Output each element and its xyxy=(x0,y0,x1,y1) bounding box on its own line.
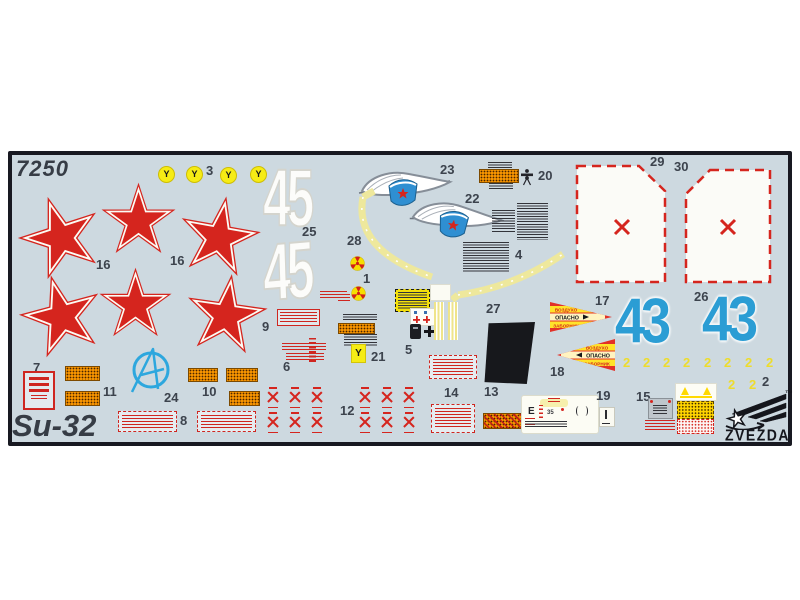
red-stencil-text xyxy=(286,353,324,362)
red-micro-text xyxy=(548,398,560,404)
red-outline-plate xyxy=(277,309,320,326)
part-label-3: 3 xyxy=(206,164,213,177)
red-star xyxy=(96,266,175,345)
red-dot xyxy=(650,400,653,403)
placard-bar xyxy=(29,389,49,392)
orange-striped-decal xyxy=(479,169,519,183)
danger-main-text: ОПАСНО xyxy=(555,316,579,322)
red-dot xyxy=(668,400,671,403)
part-label-6: 6 xyxy=(283,360,290,373)
panel-letter: E xyxy=(528,407,535,417)
small-bort-number: 2 xyxy=(724,356,731,369)
part-label-13: 13 xyxy=(484,385,498,398)
red-dashed-plate xyxy=(431,404,475,433)
small-bort-number: 2 xyxy=(643,356,650,369)
no-step-cross-decal xyxy=(356,387,374,408)
small-bort-number: 2 xyxy=(683,356,690,369)
small-bort-number: 2 xyxy=(663,356,670,369)
yellow-ladder-bars xyxy=(434,302,459,340)
marker-base xyxy=(602,423,610,425)
yellow-arrow-icon xyxy=(681,387,689,395)
no-step-cross-decal xyxy=(286,387,304,408)
block-marks xyxy=(653,405,667,415)
arrow-strip-decal xyxy=(675,383,717,401)
yellow-arrow-icon xyxy=(703,387,711,395)
panel-code: 35 xyxy=(547,410,554,416)
red-cross-mark xyxy=(413,316,420,323)
part-label-12: 12 xyxy=(340,404,354,417)
small-white-decal xyxy=(430,284,451,301)
trademark-symbol: ™ xyxy=(785,389,793,398)
bracket-mark xyxy=(576,406,581,416)
bort-number-blue: 43 xyxy=(615,294,667,347)
orange-striped-decal xyxy=(338,323,375,334)
red-text-lines xyxy=(201,415,252,428)
red-dotted-decal xyxy=(677,419,714,434)
part-label-10: 10 xyxy=(202,385,216,398)
part-label-4: 4 xyxy=(515,248,522,261)
gray-block-decal xyxy=(648,398,673,419)
red-text-lines xyxy=(435,408,471,429)
orange-cross-decal xyxy=(483,413,526,429)
bracket-mark xyxy=(583,406,588,416)
danger-bottom-text: ЗАБОРНИК xyxy=(584,361,610,366)
danger-bottom-text: ЗАБОРНИК xyxy=(553,323,579,328)
red-stencil-text xyxy=(338,294,350,301)
small-bort-number: 2 xyxy=(704,356,711,369)
ejection-square-icon: Y xyxy=(351,344,366,363)
part-label-18: 18 xyxy=(550,365,564,378)
cross-hatch xyxy=(484,414,525,428)
small-bort-number: 2 xyxy=(745,356,752,369)
no-step-cross-decal xyxy=(308,387,326,408)
model-name: Su-32 xyxy=(12,408,96,444)
radiation-icon xyxy=(351,286,366,301)
part-label-30: 30 xyxy=(674,160,688,173)
part-label-27: 27 xyxy=(486,302,500,315)
small-bort-number: 2 xyxy=(766,356,773,369)
red-stencil-text xyxy=(645,420,675,430)
red-dashed-plate xyxy=(429,355,477,379)
black-stencil-text xyxy=(492,210,515,233)
bort-number-blue: 43 xyxy=(702,292,754,345)
danger-top-text: ВОЗДУХО xyxy=(586,346,609,351)
black-stencil-text xyxy=(343,314,377,322)
no-step-cross-decal xyxy=(400,387,418,408)
black-stencil-text xyxy=(488,162,512,168)
white-panel-decal xyxy=(684,168,772,284)
part-label-2: 2 xyxy=(762,375,769,388)
red-placard-decal xyxy=(23,371,55,410)
blue-dot xyxy=(414,311,417,314)
yellow-line xyxy=(680,396,712,398)
no-step-cross-decal xyxy=(308,412,326,433)
no-step-cross-decal xyxy=(400,412,418,433)
placard-bar xyxy=(29,377,49,380)
part-label-25: 25 xyxy=(302,225,316,238)
red-star xyxy=(98,181,179,262)
ejection-circle-icon: Y xyxy=(220,167,237,184)
black-device-decal xyxy=(410,324,421,339)
blue-dot xyxy=(424,311,427,314)
part-label-16: 16 xyxy=(96,258,110,271)
no-step-cross-decal xyxy=(286,412,304,433)
small-marker-decal xyxy=(599,407,615,427)
zvezda-logo xyxy=(722,390,792,430)
red-vertical-marker xyxy=(309,338,316,362)
marker-bar xyxy=(605,410,607,419)
decal-sheet-scan: { "sheet": { "kit_number": "7250", "mode… xyxy=(0,0,800,600)
red-dot xyxy=(561,408,564,411)
black-stencil-text xyxy=(517,203,548,240)
panel-decal: E 35 xyxy=(521,395,599,434)
red-dot-column xyxy=(539,405,543,418)
part-label-19: 19 xyxy=(596,389,610,402)
part-label-24: 24 xyxy=(164,391,178,404)
ladder-bar xyxy=(448,302,458,340)
red-stencil-text xyxy=(282,343,326,352)
black-stencil-text xyxy=(489,183,513,191)
part-label-1: 1 xyxy=(363,272,370,285)
no-step-cross-decal xyxy=(378,412,396,433)
warning-text-lines xyxy=(398,292,427,309)
no-step-cross-decal xyxy=(264,412,282,433)
no-step-cross-decal xyxy=(264,387,282,408)
part-label-16: 16 xyxy=(170,254,184,267)
no-step-cross-decal xyxy=(378,387,396,408)
orange-striped-decal xyxy=(65,366,100,381)
part-label-5: 5 xyxy=(405,343,412,356)
danger-main-text: ОПАСНО xyxy=(586,354,610,360)
part-label-14: 14 xyxy=(444,386,458,399)
red-cross-mark xyxy=(423,316,430,323)
orange-striped-decal xyxy=(226,368,258,382)
antiglare-panel-decal xyxy=(484,322,535,384)
danger-top-text: ВОЗДУХО xyxy=(555,308,578,313)
black-stencil-text xyxy=(463,242,509,273)
red-text-lines xyxy=(280,312,317,323)
orange-striped-decal xyxy=(229,391,260,406)
part-label-11: 11 xyxy=(103,385,117,398)
part-label-17: 17 xyxy=(595,294,609,307)
white-panel-decal xyxy=(575,164,667,284)
kit-number: 7250 xyxy=(16,156,69,182)
orange-striped-decal xyxy=(188,368,218,382)
no-step-cross-decal xyxy=(356,412,374,433)
red-dashed-plate xyxy=(197,411,256,432)
part-label-8: 8 xyxy=(180,414,187,427)
placard-text xyxy=(31,395,47,400)
orange-striped-decal xyxy=(65,391,100,406)
probe-symbol-icon xyxy=(521,169,534,187)
part-label-29: 29 xyxy=(650,155,664,168)
brand-name: ZVEZDA xyxy=(725,426,790,444)
part-label-21: 21 xyxy=(371,350,385,363)
placard-bar xyxy=(29,383,49,386)
ladder-bar xyxy=(434,302,444,340)
red-text-lines xyxy=(122,415,173,428)
part-label-9: 9 xyxy=(262,320,269,333)
red-text-lines xyxy=(433,359,473,375)
ejection-circle-icon: Y xyxy=(186,166,203,183)
black-code-line xyxy=(525,421,567,428)
bort-number-white: 45 xyxy=(262,233,312,312)
part-label-23: 23 xyxy=(440,163,454,176)
device-mark xyxy=(413,327,418,329)
yellow-dotted-decal xyxy=(677,401,714,419)
radiation-icon xyxy=(350,256,365,271)
red-dashed-plate xyxy=(118,411,177,432)
red-star xyxy=(176,266,275,365)
part-label-20: 20 xyxy=(538,169,552,182)
small-bort-number: 2 xyxy=(623,356,630,369)
